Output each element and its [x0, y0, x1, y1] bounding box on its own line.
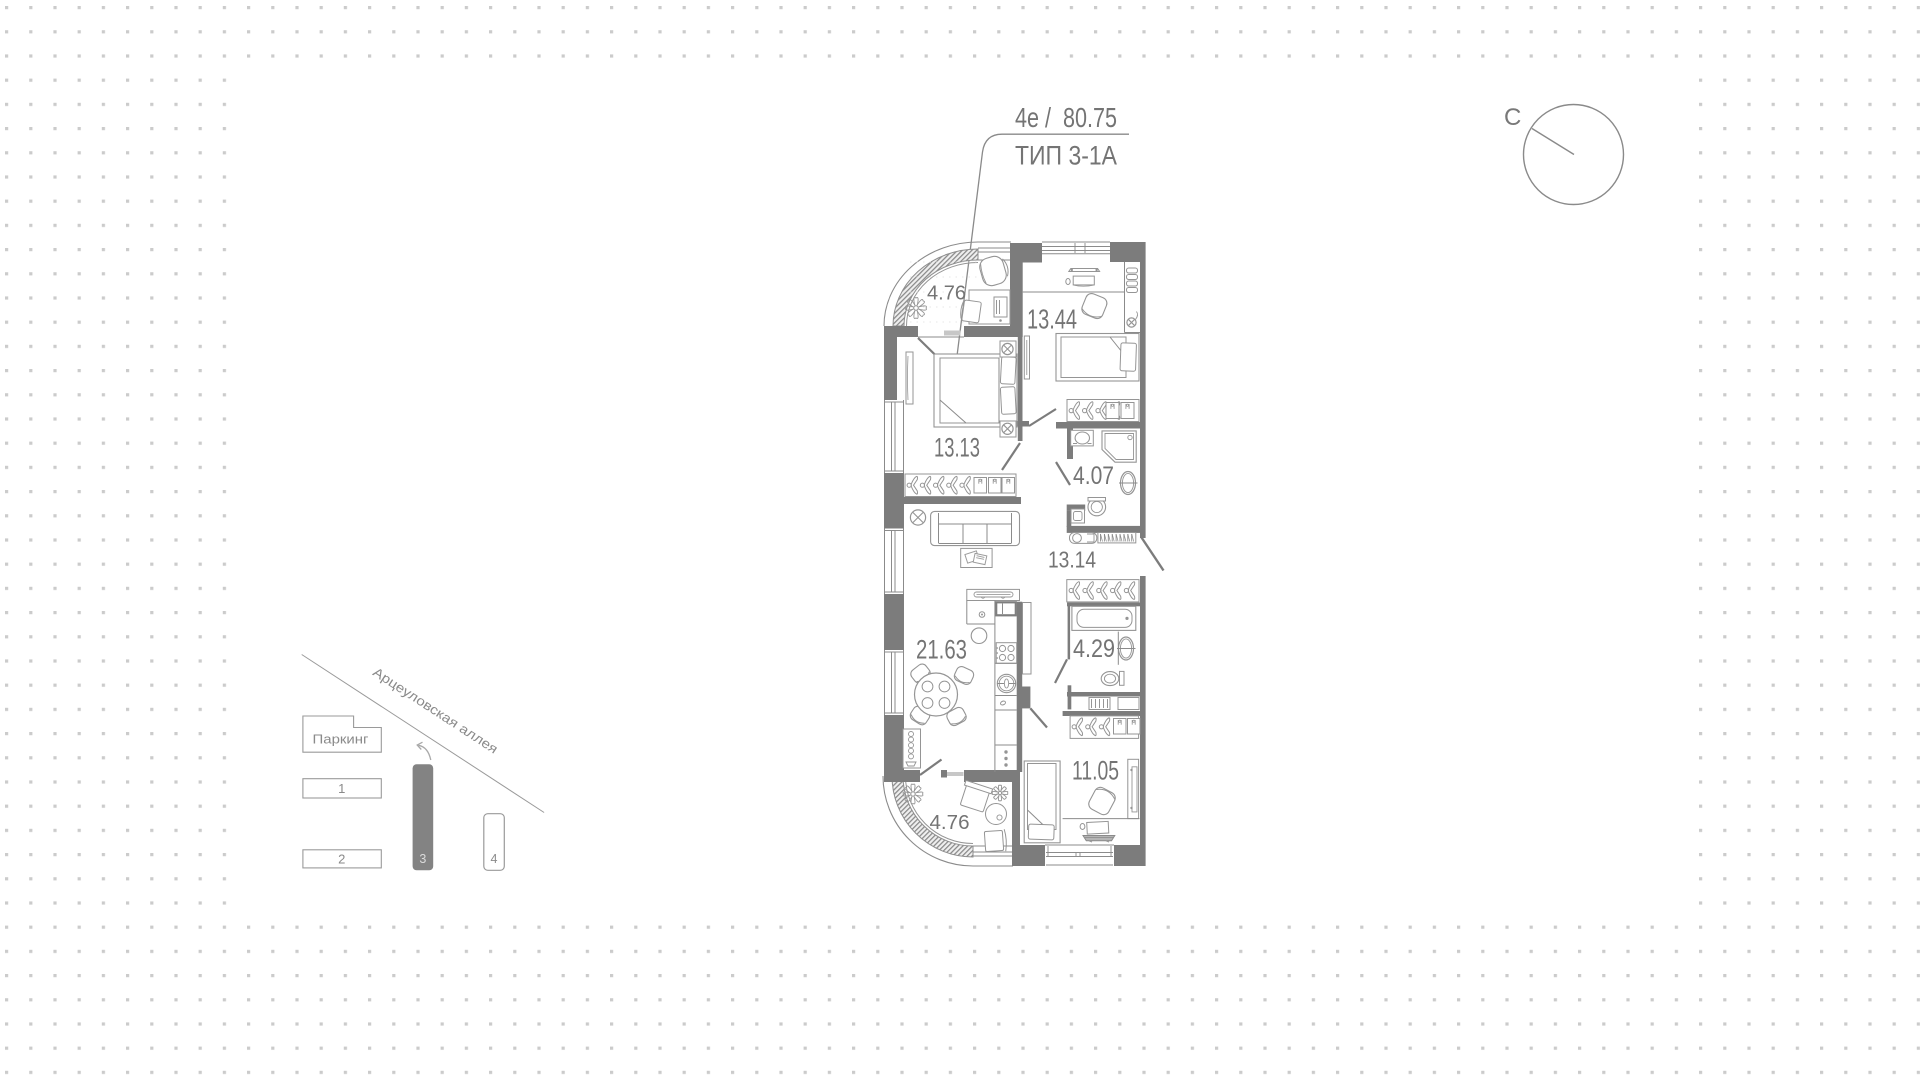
svg-text:4: 4 [491, 852, 498, 866]
svg-text:13.13: 13.13 [934, 432, 980, 462]
svg-text:4.76: 4.76 [927, 282, 966, 305]
svg-text:4.76: 4.76 [930, 811, 970, 834]
svg-text:4.07: 4.07 [1073, 462, 1114, 490]
svg-text:3: 3 [419, 852, 426, 866]
svg-text:С: С [1504, 104, 1521, 131]
svg-text:13.44: 13.44 [1027, 304, 1077, 335]
svg-text:ТИП 3-1А: ТИП 3-1А [1015, 141, 1117, 171]
svg-text:4.29: 4.29 [1073, 635, 1115, 663]
svg-text:11.05: 11.05 [1072, 756, 1119, 786]
svg-text:21.63: 21.63 [916, 635, 967, 665]
svg-text:1: 1 [338, 781, 345, 796]
svg-text:Паркинг: Паркинг [313, 733, 370, 747]
svg-text:13.14: 13.14 [1048, 546, 1096, 572]
svg-text:4е / 80.75: 4е / 80.75 [1015, 102, 1117, 133]
svg-text:2: 2 [338, 852, 345, 867]
